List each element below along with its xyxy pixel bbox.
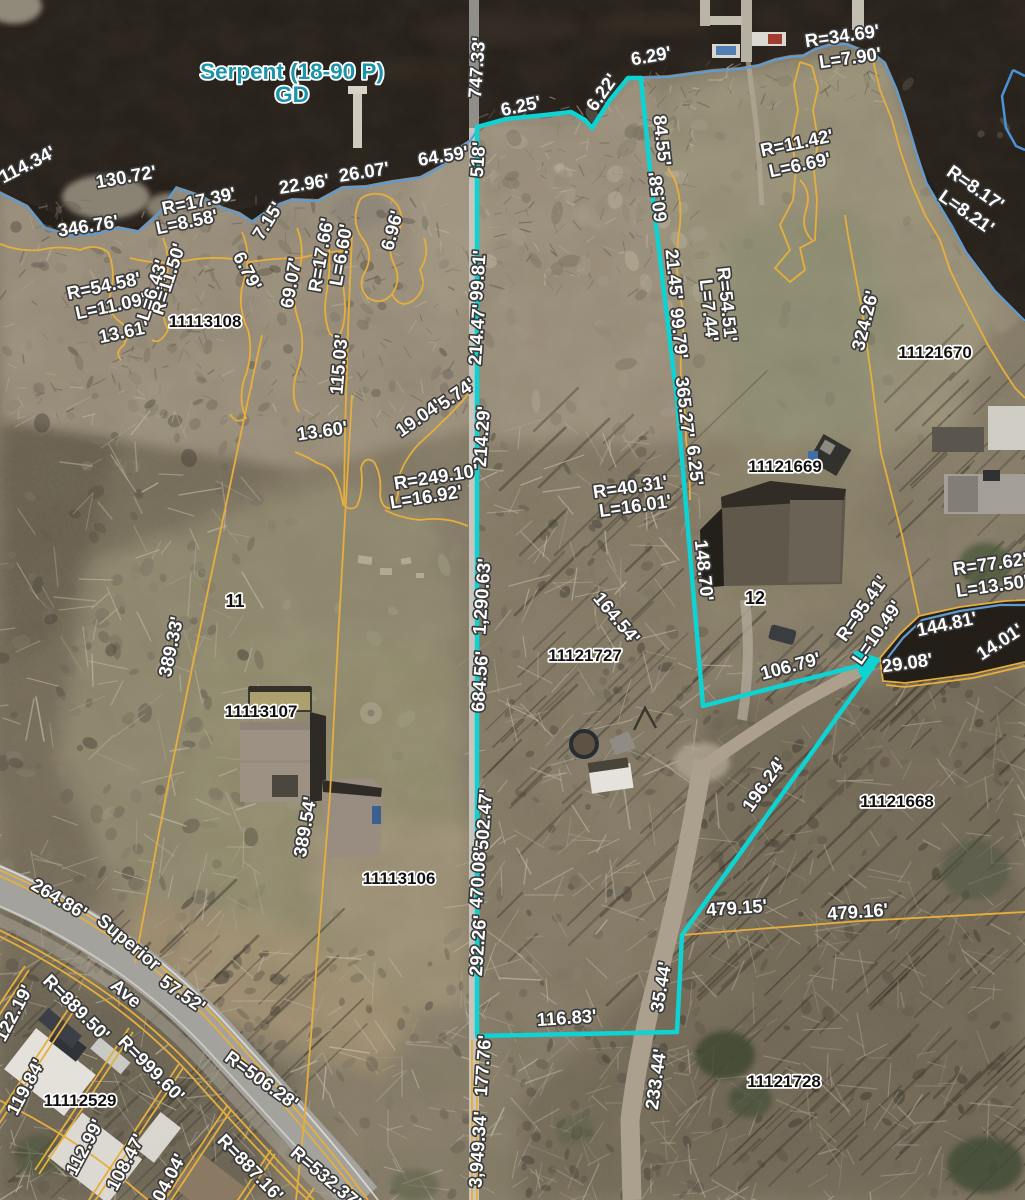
- svg-text:470.08': 470.08': [465, 846, 490, 908]
- svg-text:116.83': 116.83': [536, 1005, 597, 1030]
- svg-text:11121668: 11121668: [860, 792, 934, 811]
- svg-text:214.47': 214.47': [464, 303, 489, 365]
- svg-text:11113107: 11113107: [225, 702, 298, 721]
- svg-text:GD: GD: [275, 82, 309, 107]
- svg-text:177.76': 177.76': [470, 1034, 495, 1096]
- svg-text:11121670: 11121670: [898, 343, 972, 362]
- svg-text:99.81': 99.81': [465, 250, 489, 302]
- svg-text:11121669: 11121669: [748, 457, 822, 476]
- svg-text:479.16': 479.16': [826, 899, 888, 924]
- svg-text:747.33': 747.33': [464, 36, 489, 98]
- svg-text:684.56': 684.56': [467, 650, 492, 712]
- svg-text:11121727: 11121727: [548, 646, 622, 665]
- svg-text:502.47': 502.47': [471, 788, 496, 850]
- svg-text:479.15': 479.15': [705, 895, 767, 920]
- svg-text:11: 11: [225, 591, 244, 611]
- svg-text:11121728: 11121728: [747, 1072, 821, 1091]
- svg-text:11113106: 11113106: [363, 869, 436, 888]
- svg-text:12: 12: [745, 588, 765, 608]
- svg-text:11113108: 11113108: [169, 312, 242, 331]
- svg-text:518': 518': [466, 141, 489, 178]
- svg-text:6.25': 6.25': [683, 444, 708, 486]
- svg-text:Serpent (18-90 P): Serpent (18-90 P): [200, 59, 384, 84]
- svg-text:292.26': 292.26': [465, 914, 490, 976]
- svg-text:214.29': 214.29': [469, 405, 494, 467]
- svg-text:11112529: 11112529: [44, 1091, 117, 1110]
